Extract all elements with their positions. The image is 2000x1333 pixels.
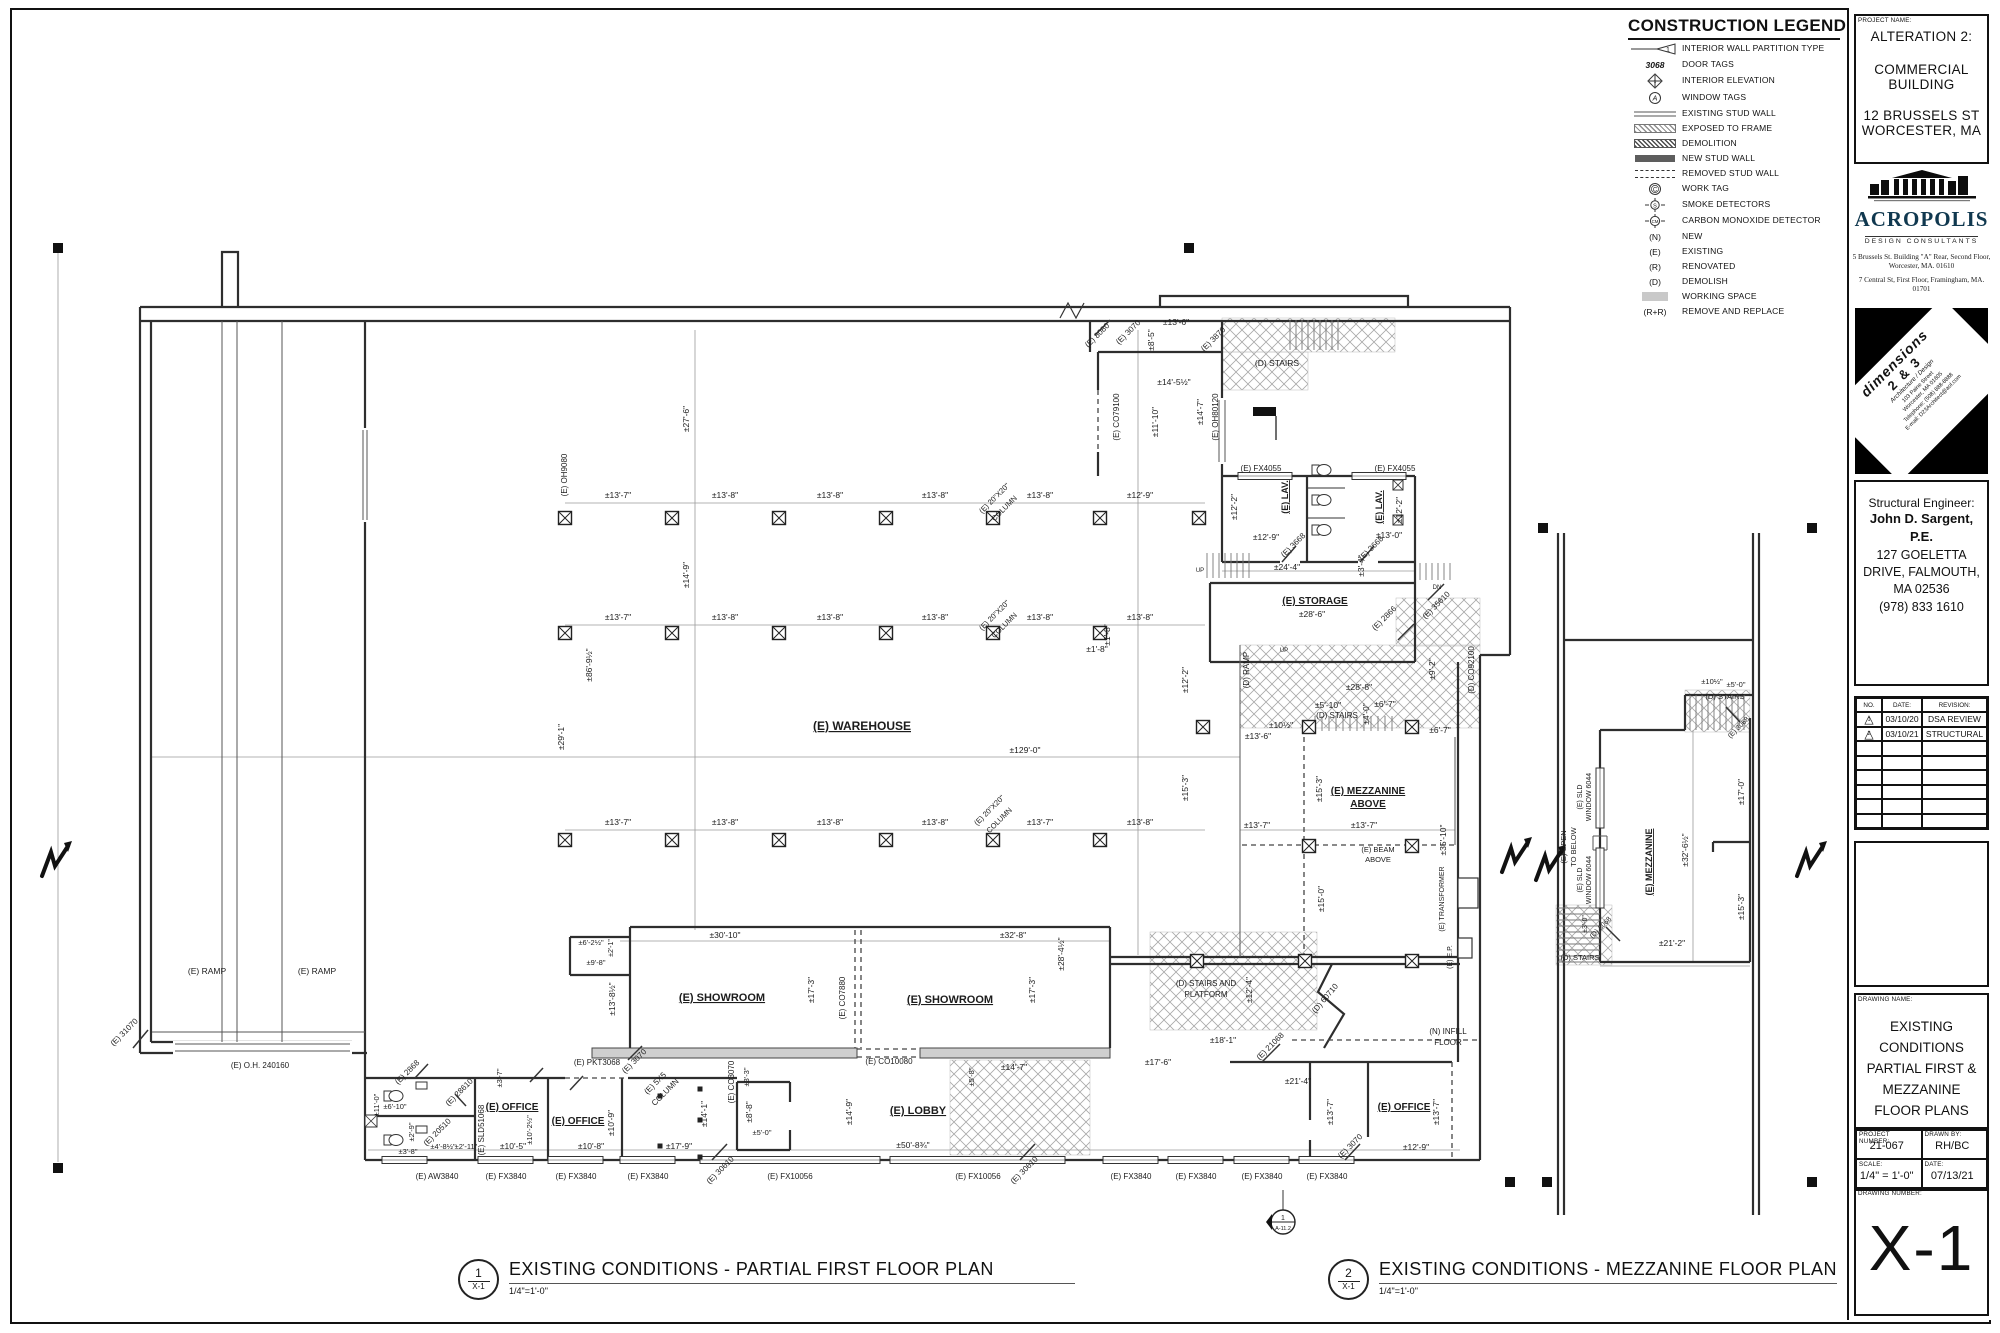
- plan-label: (E) FX10056: [955, 1172, 1001, 1181]
- svg-text:A: A: [1652, 96, 1658, 103]
- removed-stud-wall-icon: [1635, 170, 1675, 178]
- elevation-marker-arrow: [1266, 1214, 1272, 1230]
- legend-item-label: INTERIOR ELEVATION: [1682, 76, 1775, 86]
- plan-label: ±3'-7": [495, 1068, 504, 1087]
- plan-label: (E) OPEN: [1559, 830, 1568, 863]
- plan-label: ±15'-3": [1314, 776, 1324, 802]
- drawn-by: RH/BC: [1923, 1140, 1983, 1152]
- plan-label: ±13'-8": [817, 490, 843, 500]
- revision-cell: [1882, 785, 1922, 800]
- plan-label: (E) FX3840: [556, 1172, 597, 1181]
- date-cell: DATE: 07/13/21: [1922, 1159, 1988, 1189]
- revision-cell: [1882, 756, 1922, 771]
- plan-label: ±9'-8": [586, 958, 605, 967]
- architect-subtitle: DESIGN CONSULTANTS: [1865, 236, 1979, 245]
- scale-label: SCALE:: [1859, 1161, 1883, 1168]
- toilet-icon: [1312, 525, 1331, 536]
- plan-label: ±6'-10": [383, 1102, 407, 1111]
- plan-label: (E) FX3840: [628, 1172, 669, 1181]
- plan-label: (E) MEZZANINE: [1331, 786, 1406, 797]
- smoke-detector-icon: S: [1645, 198, 1665, 212]
- column-marker: [666, 834, 679, 847]
- legend-item: CWORK TAG: [1628, 182, 1840, 196]
- transformer-box: [1458, 878, 1478, 908]
- revision-cell: 03/10/21: [1882, 727, 1922, 742]
- legend-item: SSMOKE DETECTORS: [1628, 198, 1840, 212]
- plan-label: ±10½": [1701, 677, 1723, 686]
- plan-label: ±3'-3": [742, 1067, 751, 1086]
- revision-rows: NO.DATE:REVISION:△103/10/20DSA REVIEW△20…: [1856, 698, 1987, 828]
- legend-item-label: NEW: [1682, 232, 1702, 242]
- legend-item: WORKING SPACE: [1628, 290, 1840, 303]
- revision-cell: STRUCTURAL: [1922, 727, 1987, 742]
- scale-value: 1/4" = 1'-0": [1857, 1170, 1917, 1182]
- plan-label: (E) FX3840: [1307, 1172, 1348, 1181]
- plan-label: PLATFORM: [1185, 990, 1228, 999]
- plan-label: ±12'-2": [1180, 667, 1190, 693]
- date-value: 07/13/21: [1923, 1170, 1983, 1182]
- carbon-monoxide-detector-icon: CM: [1645, 214, 1665, 228]
- plan-label: (E) 3668: [1279, 531, 1307, 559]
- plan-label: ±50'-8¾": [896, 1140, 929, 1150]
- partition-tag-icon: 1: [1631, 42, 1679, 56]
- toilet-icon: [1312, 495, 1331, 506]
- revision-cell: [1856, 814, 1882, 829]
- plan-label: (D) STAIRS AND: [1176, 979, 1237, 988]
- architect-block: ACROPOLIS DESIGN CONSULTANTS 5 Brussels …: [1849, 168, 1994, 304]
- legend-symbol: 1: [1628, 42, 1682, 56]
- plan-label: (E) CO7880: [838, 976, 847, 1019]
- legend-item-label: EXISTING: [1682, 247, 1723, 257]
- plan-label: ±6'-7": [1429, 725, 1451, 735]
- engineer-address: 127 GOELETTA DRIVE, FALMOUTH, MA 02536: [1863, 547, 1981, 598]
- engineer-box: Structural Engineer: John D. Sargent, P.…: [1854, 480, 1989, 686]
- legend-item: (R+R)REMOVE AND REPLACE: [1628, 305, 1840, 318]
- plan-label: ±13'-7": [1431, 1099, 1441, 1125]
- drawing-number-label: DRAWING NUMBER:: [1858, 1190, 1922, 1197]
- exposed-to-frame-icon: [1634, 124, 1676, 133]
- plan-label: ±13'-8": [1027, 612, 1053, 622]
- hatch-area: [1222, 318, 1395, 352]
- plan-label: (E) 3070: [1336, 1132, 1364, 1160]
- door-leaf: [530, 1068, 543, 1082]
- dimension-lines: [58, 253, 1750, 1162]
- plan-label: (D) CO92100: [1467, 646, 1476, 694]
- plan-label: ±3'-8": [398, 1147, 417, 1156]
- revision-cell: [1882, 770, 1922, 785]
- plan-label: (D) RAMP: [1242, 652, 1251, 688]
- revision-cell: [1922, 741, 1987, 756]
- revision-cell: [1882, 741, 1922, 756]
- legend-item: NEW STUD WALL: [1628, 152, 1840, 165]
- north-arrow-icon: [1502, 837, 1532, 872]
- acropolis-logo: [1864, 168, 1980, 204]
- revision-cell: [1856, 756, 1882, 771]
- column-marker: [1406, 955, 1419, 968]
- legend-item: AWINDOW TAGS: [1628, 91, 1840, 105]
- plan-label: (E) FX3840: [1176, 1172, 1217, 1181]
- legend-symbol: (N): [1628, 232, 1682, 242]
- north-arrow-icon: [1797, 841, 1827, 876]
- column-marker: [1406, 721, 1419, 734]
- plan-label: ±24'-4": [1274, 562, 1300, 572]
- plan-label: (E) E.P.: [1447, 945, 1454, 969]
- plan-label: ±27'-6": [681, 406, 691, 432]
- plan-label: ±13'-8": [922, 612, 948, 622]
- legend-item: DEMOLITION: [1628, 137, 1840, 150]
- plan-label: ±10'-8": [578, 1141, 604, 1151]
- work-tag-icon: C: [1648, 182, 1662, 196]
- misc-symbols: [1060, 303, 1478, 1234]
- legend-symbol: S: [1628, 198, 1682, 212]
- engineer-name: John D. Sargent, P.E.: [1870, 510, 1974, 545]
- plan1-number: 1: [468, 1267, 490, 1282]
- plan-label: ±13'-0": [1376, 530, 1402, 540]
- plan-label: (E) SLD: [1577, 785, 1584, 810]
- svg-text:1: 1: [1666, 47, 1670, 54]
- shaft-x-box: [1393, 480, 1403, 490]
- column-marker: [666, 627, 679, 640]
- plan-label: ±13'-7": [605, 490, 631, 500]
- plan-label: (E) FX4055: [1241, 464, 1282, 473]
- legend-item-label: NEW STUD WALL: [1682, 154, 1755, 164]
- plan-label: (E) BEAM: [1361, 845, 1394, 854]
- plan-label: (E) LOBBY: [890, 1105, 947, 1117]
- legend-item-label: EXISTING STUD WALL: [1682, 109, 1776, 119]
- legend-symbol: (R): [1628, 262, 1682, 272]
- plan-label: (E) CO3070: [727, 1060, 736, 1103]
- plan-label: (E) FX3840: [1242, 1172, 1283, 1181]
- legend-symbol: (R+R): [1628, 307, 1682, 317]
- legend-symbol: [1628, 155, 1682, 162]
- plan-label: ±11'-0": [372, 1093, 381, 1116]
- revision-cell: 03/10/20: [1882, 712, 1922, 727]
- legend-item-label: INTERIOR WALL PARTITION TYPE: [1682, 44, 1824, 54]
- plan-label: ±5'-8": [967, 1067, 976, 1086]
- walls-dashed: [565, 390, 1478, 1160]
- legend-symbol: CM: [1628, 214, 1682, 228]
- plan2-title-bubble: 2 X-1: [1328, 1259, 1369, 1300]
- column-marker: [1191, 955, 1204, 968]
- plan-label: ±13'-7": [1325, 1099, 1335, 1125]
- plan-label: ±11'-10": [1150, 407, 1160, 437]
- column-marker: [773, 627, 786, 640]
- revision-cell: [1922, 814, 1987, 829]
- legend-item: 3068DOOR TAGS: [1628, 58, 1840, 71]
- column-marker: [559, 834, 572, 847]
- revision-cell: [1922, 770, 1987, 785]
- plan-label: ±12'-9": [1253, 532, 1279, 542]
- opening-whiteouts: [173, 398, 1227, 1055]
- project-name-line2: COMMERCIAL BUILDING: [1867, 62, 1977, 92]
- existing-stud-wall-icon: [1634, 109, 1676, 119]
- plan-label: ±17'-6": [1145, 1057, 1171, 1067]
- project-name-line1: ALTERATION 2:: [1856, 29, 1987, 44]
- legend-rows: 1INTERIOR WALL PARTITION TYPE3068DOOR TA…: [1628, 42, 1840, 318]
- drawing-name-box: DRAWING NAME: EXISTING CONDITIONS PARTIA…: [1854, 993, 1989, 1131]
- plan-label: ±1'-8": [1102, 624, 1112, 646]
- plan-label: ±13'-7": [1351, 820, 1377, 830]
- column-marker: [880, 834, 893, 847]
- plan-label: WINDOW 6044: [1586, 856, 1593, 904]
- plan-label: ±4'-0": [1361, 703, 1371, 725]
- plan-label: (E) LAV.: [1280, 480, 1290, 514]
- legend-item: EXPOSED TO FRAME: [1628, 122, 1840, 135]
- plan-label: (E) STORAGE: [1282, 596, 1348, 607]
- plan-label: (E) 8080: [1083, 321, 1111, 349]
- plan-label: ±13'-7": [605, 817, 631, 827]
- legend-item-label: WINDOW TAGS: [1682, 93, 1746, 103]
- registration-mark: [53, 1163, 63, 1173]
- date-label: DATE:: [1925, 1161, 1944, 1168]
- plan-label: ±13'-8½": [607, 982, 617, 1015]
- drawing-number-box: DRAWING NUMBER: X-1: [1854, 1187, 1989, 1316]
- engineer-label: Structural Engineer:: [1856, 496, 1987, 510]
- column-marker: [773, 834, 786, 847]
- project-name-line3: 12 BRUSSELS ST WORCESTER, MA: [1862, 108, 1982, 138]
- plan-label: ±3'-0": [1582, 915, 1589, 933]
- column-marker: [987, 834, 1000, 847]
- plan-label: ±12'-2": [1394, 497, 1404, 523]
- plan-label: ±13'-6": [1163, 317, 1189, 327]
- plan-label: ±28'-6": [1299, 609, 1325, 619]
- plan-label: ±21'-2": [1659, 938, 1685, 948]
- revision-cell: [1882, 814, 1922, 829]
- toilet-icon: [384, 1135, 403, 1146]
- registration-mark: [1538, 523, 1548, 533]
- window-tag-icon: A: [1648, 91, 1662, 105]
- plan-label: ±28'-4½": [1056, 937, 1066, 970]
- plan2-sheet-ref: X-1: [1342, 1282, 1354, 1292]
- post-dot: [658, 1144, 663, 1149]
- registration-mark: [1807, 523, 1817, 533]
- plan-label: DN: [1433, 585, 1442, 591]
- plan-label: ±13'-7": [605, 612, 631, 622]
- plan-label: (E) FX3840: [486, 1172, 527, 1181]
- architect-address1: 5 Brussels St. Building "A" Rear, Second…: [1849, 253, 1994, 271]
- plan-label: ±13'-8": [712, 612, 738, 622]
- plan2-scale: 1/4"=1'-0": [1379, 1286, 1837, 1296]
- plan-label: (E) OFFICE: [1378, 1102, 1431, 1113]
- legend-item-label: DOOR TAGS: [1682, 60, 1734, 70]
- drawing-sheet: (E) WAREHOUSE(E) SHOWROOM(E) SHOWROOM(E)…: [0, 0, 2000, 1333]
- plan-label: (E) CO79100: [1112, 393, 1121, 441]
- storefront-band: [592, 1048, 1110, 1058]
- interior-elevation-icon: 1: [1647, 73, 1663, 89]
- plan-label: ±14'-7": [1001, 1062, 1027, 1072]
- legend-item-label: WORKING SPACE: [1682, 292, 1757, 302]
- electrical-panel-box: [1458, 938, 1472, 958]
- legend-item: CMCARBON MONOXIDE DETECTOR: [1628, 214, 1840, 228]
- plan-label: ±35'-10": [1438, 824, 1448, 855]
- engineer-phone: (978) 833 1610: [1856, 600, 1987, 614]
- drawing-name-label: DRAWING NAME:: [1858, 996, 1913, 1003]
- drawing-number: X-1: [1856, 1211, 1987, 1285]
- project-number-cell: PROJECT NUMBER: 21-067: [1856, 1129, 1922, 1159]
- plan-label: ±2'-11": [455, 1142, 478, 1151]
- plan-label: ±15'-3": [1180, 775, 1190, 801]
- plan-label: TO BELOW: [1569, 826, 1578, 866]
- column-marker: [1094, 512, 1107, 525]
- plan-label: 1: [1281, 1215, 1285, 1222]
- plan-label: ±12'-4": [1244, 977, 1254, 1003]
- post-dot: [698, 1087, 703, 1092]
- plan-label: ±18'-1": [1210, 1035, 1236, 1045]
- plan-label: ±13'-8": [1127, 817, 1153, 827]
- project-name-label: PROJECT NAME:: [1858, 17, 1912, 24]
- drawn-by-label: DRAWN BY:: [1925, 1131, 1962, 1138]
- plan-label: ±14'-9": [844, 1099, 854, 1125]
- registration-mark: [1807, 1177, 1817, 1187]
- plan-label: ±13'-8": [1027, 490, 1053, 500]
- plan-label: ±14'-5½": [1157, 377, 1190, 387]
- plan-label: ±17'-9": [666, 1141, 692, 1151]
- architect-name: ACROPOLIS: [1849, 209, 1994, 230]
- legend-symbol: [1628, 139, 1682, 148]
- revision-table: NO.DATE:REVISION:△103/10/20DSA REVIEW△20…: [1854, 696, 1989, 830]
- legend-item-label: RENOVATED: [1682, 262, 1735, 272]
- column-marker: [666, 512, 679, 525]
- revision-cell: [1922, 756, 1987, 771]
- column-marker: [559, 512, 572, 525]
- plan1-title-text: EXISTING CONDITIONS - PARTIAL FIRST FLOO…: [509, 1259, 1075, 1284]
- plan-text-labels: (E) WAREHOUSE(E) SHOWROOM(E) SHOWROOM(E)…: [109, 317, 1751, 1232]
- revision-cell: △1: [1856, 712, 1882, 727]
- revision-cell: [1856, 785, 1882, 800]
- plan-label: ±14'-7": [1195, 399, 1205, 425]
- plan-label: ±17'-3": [1027, 977, 1037, 1003]
- legend-item: REMOVED STUD WALL: [1628, 167, 1840, 180]
- plan-label: ±5'-10": [1315, 700, 1341, 710]
- plan-label: UP: [1280, 648, 1288, 654]
- working-space-icon: [1642, 292, 1668, 301]
- plan-label: ±17'-0": [1736, 779, 1746, 805]
- plan-label: UP: [1196, 568, 1204, 574]
- plan-label: (E) OFFICE: [552, 1116, 605, 1127]
- plan-label: ±12'-9": [1403, 1142, 1429, 1152]
- legend-item-label: WORK TAG: [1682, 184, 1729, 194]
- legend-item: 1INTERIOR WALL PARTITION TYPE: [1628, 42, 1840, 56]
- plan-label: ±14'-9": [681, 562, 691, 588]
- plan-label: ±9'-2": [1427, 658, 1437, 680]
- legend-symbol: (E): [1628, 247, 1682, 257]
- toilet-icon: [1312, 465, 1331, 476]
- revision-cell: NO.: [1856, 698, 1882, 712]
- plan-label: ±15'-0": [1316, 886, 1326, 912]
- revision-cell: DSA REVIEW: [1922, 712, 1987, 727]
- north-arrow-icon: [42, 841, 72, 876]
- plan-label: (E) O.H. 240160: [231, 1061, 290, 1070]
- plan-label: (E) PKT3068: [574, 1058, 621, 1067]
- plan-label: (E) AW3840: [416, 1172, 459, 1181]
- status-abbrev: (N): [1649, 232, 1661, 242]
- plan-label: ±12'-2": [1229, 494, 1239, 520]
- column-marker: [880, 627, 893, 640]
- plan-label: ±13'-8": [922, 817, 948, 827]
- plan-label: A-11.2: [1275, 1226, 1291, 1232]
- plan-label: (E) OH80120: [1211, 393, 1220, 441]
- plan-label: WINDOW 6044: [1586, 773, 1593, 821]
- registration-mark: [53, 243, 63, 253]
- revision-cell: [1856, 770, 1882, 785]
- plan-label: ±10'-5": [500, 1141, 526, 1151]
- plan2-number: 2: [1338, 1267, 1360, 1282]
- plan-label: (D) STAIRS: [1255, 358, 1300, 368]
- plan-label: ±4'-8½": [430, 1142, 456, 1151]
- svg-text:C: C: [1653, 188, 1658, 194]
- plan-label: FLOOR: [1434, 1038, 1462, 1047]
- legend-item-label: REMOVED STUD WALL: [1682, 169, 1779, 179]
- legend-item-label: CARBON MONOXIDE DETECTOR: [1682, 216, 1821, 226]
- plan-label: ABOVE: [1365, 855, 1391, 864]
- plan-label: (E) LAV.: [1374, 490, 1384, 524]
- plan-label: (N) INFILL: [1429, 1027, 1467, 1036]
- column-marker: [559, 627, 572, 640]
- plan-label: ±17'-3": [806, 977, 816, 1003]
- sink-icon: [416, 1126, 427, 1133]
- plan-label: ±12'-9": [1127, 490, 1153, 500]
- legend-symbol: C: [1628, 182, 1682, 196]
- column-marker: [1094, 834, 1107, 847]
- plan-label: (D) STAIRS: [1316, 711, 1358, 720]
- project-name-box: PROJECT NAME: ALTERATION 2: COMMERCIAL B…: [1854, 14, 1989, 164]
- plan-label: ±13'-8": [922, 490, 948, 500]
- column-marker: [1299, 955, 1312, 968]
- legend-item: (D)DEMOLISH: [1628, 275, 1840, 288]
- plan-label: ±10½": [1269, 720, 1293, 730]
- legend-item-label: REMOVE AND REPLACE: [1682, 307, 1784, 317]
- legend-item-label: EXPOSED TO FRAME: [1682, 124, 1772, 134]
- revision-cell: REVISION:: [1922, 698, 1987, 712]
- plan-label: (E) TRANSFORMER: [1439, 866, 1446, 931]
- plan-label: ±13'-8": [712, 817, 738, 827]
- registration-mark: [1184, 243, 1194, 253]
- column-marker: [773, 512, 786, 525]
- plan-label: (E) OH9080: [560, 453, 569, 496]
- plan-label: (E) 28610: [444, 1076, 476, 1108]
- demolition-hatch-areas: [950, 318, 1750, 1155]
- plan-label: ±129'-0": [1009, 745, 1040, 755]
- plan-label: ±30'-10": [709, 930, 740, 940]
- plan-label: ±32'-6½": [1680, 833, 1690, 866]
- plan-label: (E) RAMP: [298, 966, 337, 976]
- legend-symbol: [1628, 124, 1682, 133]
- column-marker: [1197, 721, 1210, 734]
- plan-label: ±3'-4": [1356, 555, 1366, 577]
- plan-label: ±10'-9": [606, 1110, 616, 1136]
- plan-label: ±28'-8": [1346, 682, 1372, 692]
- plan-label: (E) FX3840: [1111, 1172, 1152, 1181]
- meta-grid: PROJECT NUMBER: 21-067 DRAWN BY: RH/BC S…: [1854, 1127, 1989, 1191]
- plan2-title: 2 X-1 EXISTING CONDITIONS - MEZZANINE FL…: [1328, 1259, 1837, 1300]
- legend-item-label: DEMOLITION: [1682, 139, 1737, 149]
- legend-item: (R)RENOVATED: [1628, 260, 1840, 273]
- plan-label: ±32'-8": [1000, 930, 1026, 940]
- plan1-title: 1 X-1 EXISTING CONDITIONS - PARTIAL FIRS…: [458, 1259, 1075, 1300]
- title-block-column: PROJECT NAME: ALTERATION 2: COMMERCIAL B…: [1847, 8, 1994, 1320]
- plumbing-fixtures: [384, 465, 1345, 1146]
- legend-symbol: [1628, 170, 1682, 178]
- plan1-title-bubble: 1 X-1: [458, 1259, 499, 1300]
- plan-label: (E) SLD: [1577, 868, 1584, 893]
- plan-label: (E) 2866: [1370, 604, 1398, 632]
- plan-label: ±13'-8": [817, 612, 843, 622]
- column-marker: [1406, 840, 1419, 853]
- status-abbrev: (D): [1649, 277, 1661, 287]
- plan-label: (E) FX10056: [767, 1172, 813, 1181]
- registration-mark: [1542, 1177, 1552, 1187]
- legend-symbol: [1628, 109, 1682, 119]
